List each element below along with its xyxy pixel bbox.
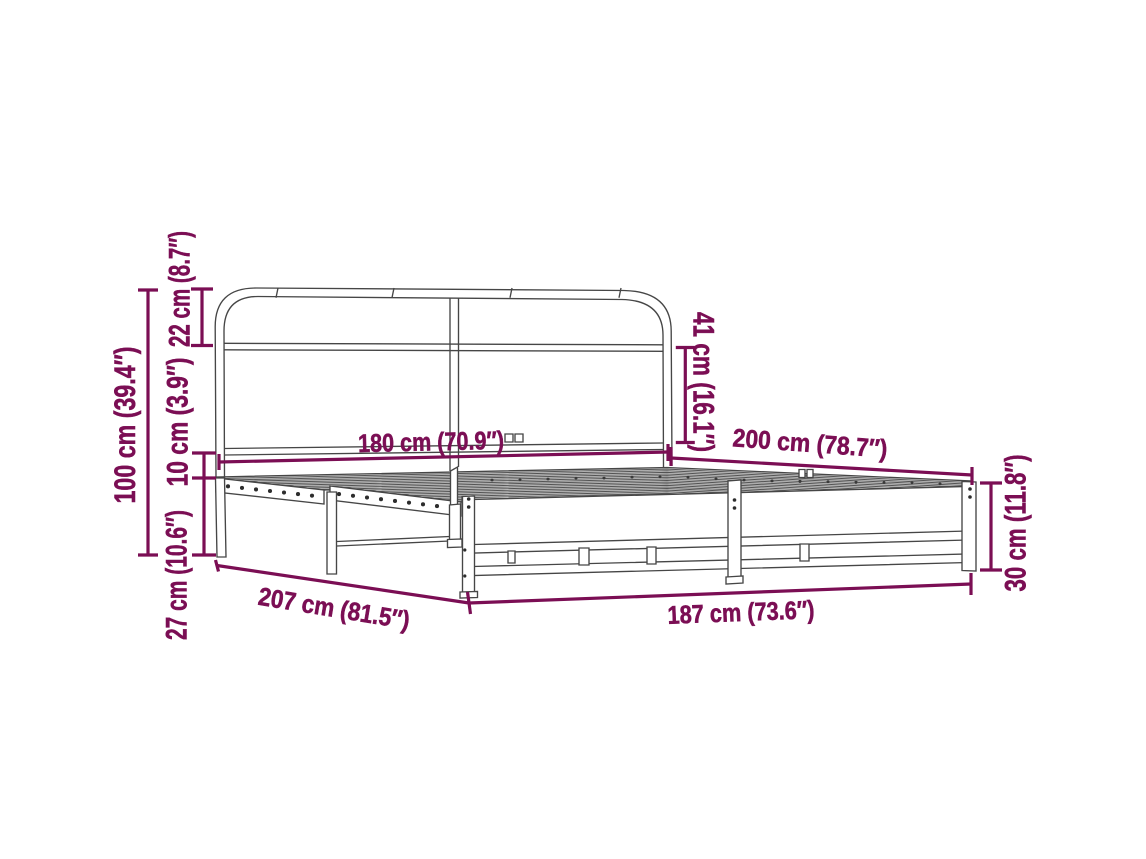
svg-text:187 cm (73.6″): 187 cm (73.6″) (667, 596, 815, 630)
svg-text:30 cm (11.8″): 30 cm (11.8″) (1000, 455, 1033, 592)
svg-text:41 cm (16.1″): 41 cm (16.1″) (687, 312, 720, 452)
svg-text:100 cm (39.4″): 100 cm (39.4″) (109, 347, 142, 504)
svg-text:22 cm (8.7″): 22 cm (8.7″) (164, 231, 197, 347)
svg-text:10 cm (3.9″): 10 cm (3.9″) (162, 358, 195, 487)
svg-text:180 cm (70.9″): 180 cm (70.9″) (358, 427, 505, 458)
svg-text:27 cm (10.6″): 27 cm (10.6″) (161, 510, 194, 640)
